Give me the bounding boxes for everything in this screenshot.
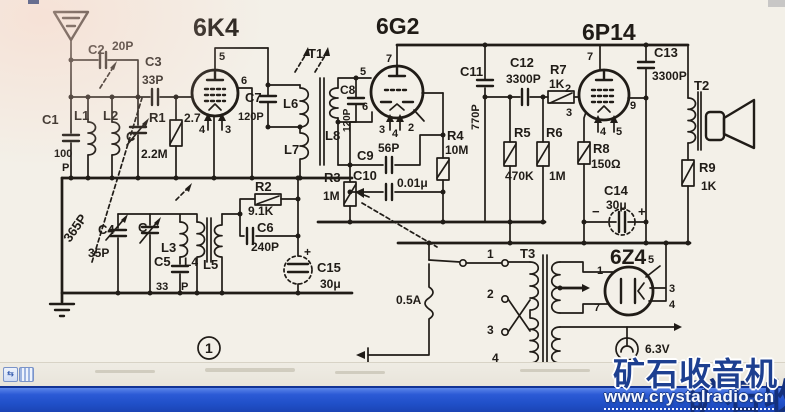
label-r5: R5 [514,125,531,140]
label-c7-val: 120P [238,111,264,123]
label-t3: T3 [520,246,535,261]
label-l2: L2 [103,108,118,123]
label-c1: C1 [42,112,59,127]
coupling-network [397,45,688,222]
label-c7: C7 [245,90,262,105]
label-c15-plus: + [304,245,311,259]
label-c5: C5 [154,254,171,269]
label-c9-val: 56P [378,141,399,155]
mixer-network [240,178,312,293]
label-pin-6g2-5: 5 [360,66,366,78]
label-title-6k4: 6K4 [193,14,239,42]
label-r7-val: 1K [549,77,565,91]
scan-artifact [28,0,39,4]
label-l7: L7 [284,142,299,157]
label-l6: L6 [283,96,298,111]
label-r7: R7 [550,62,567,77]
label-pin-6z4-7: 7 [594,302,600,314]
label-l1: L1 [74,108,89,123]
label-l5: L5 [203,257,218,272]
antenna-symbol [54,12,88,97]
label-c12-val: 3300P [506,72,541,86]
label-r1-aux: 2.7 [184,111,201,125]
tube-6g2 [371,45,443,130]
label-c3: C3 [145,54,162,69]
label-pin-6z4-5: 5 [648,254,654,266]
speaker-icon [706,100,754,148]
label-c6-val: 240P [251,240,279,254]
label-r4-val: 10M [445,143,468,157]
label-c14-val: 30μ [606,198,627,212]
label-tap-3: 3 [487,323,494,337]
label-pin-6z4-3: 3 [669,283,675,295]
label-r1-val: 2.2M [141,147,168,161]
label-pin-6z4-4: 4 [669,299,676,311]
label-c8-val: 120P [342,108,353,132]
label-section-1: 1 [205,340,213,356]
label-pin-6p14-5: 5 [616,126,622,138]
if-transformer-t1 [260,47,371,178]
label-r9: R9 [699,160,716,175]
label-pin-6p14-4: 4 [600,126,607,138]
ground-rails [50,178,690,316]
label-c8: C8 [340,83,356,97]
label-r1: R1 [149,110,166,125]
label-c13: C13 [654,45,678,60]
label-c1-unit: P [62,162,69,174]
scan-smudge [520,369,590,372]
watermark-site-url: www.crystalradio.cn [604,387,774,410]
label-r6: R6 [546,125,563,140]
label-c6: C6 [257,220,274,235]
label-c9: C9 [357,148,374,163]
label-t1: T1 [308,46,323,61]
scan-smudge [205,368,295,372]
label-c12: C12 [510,55,534,70]
label-c14-minus: − [592,204,600,219]
label-pin-6g2-6: 6 [362,101,368,113]
label-r2: R2 [255,179,272,194]
label-c1-val: 100 [54,148,72,160]
label-title-6z4: 6Z4 [610,246,647,269]
label-r5-val: 470K [505,169,534,183]
label-pin-6g2-3: 3 [379,124,385,136]
label-c2: C2 [88,42,105,57]
label-r3: R3 [324,170,341,185]
label-c10-val: 0.01μ [397,176,428,190]
label-c15-val: 30μ [320,277,341,291]
stripe-icon[interactable] [19,367,34,382]
label-l3: L3 [161,240,176,255]
label-c4: C4 [98,222,115,237]
label-t2: T2 [694,78,709,93]
label-pin-6z4-1: 1 [597,265,603,277]
screenshot-root: 6K46G26P146Z4C1100PC220PC333PC435PCC365P… [0,0,785,412]
label-c11-val: 770P [470,104,482,130]
label-pin-6g2-2: 2 [408,122,414,134]
label-r6-val: 1M [549,169,566,183]
label-c11: C11 [460,64,483,79]
label-gang-val: 365P [60,211,90,245]
label-c4-val: 35P [88,246,109,260]
label-fuse-val: 0.5A [396,293,422,307]
label-pin-6k4-6: 6 [241,75,247,87]
label-c2-val: 20P [112,39,133,53]
label-pin-6g2-4: 4 [392,128,399,140]
schematic-canvas: 6K46G26P146Z4C1100PC220PC333PC435PCC365P… [0,0,785,385]
label-c15: C15 [317,260,341,275]
label-c-gang2: C [138,220,148,235]
label-pin-6k4-5: 5 [219,51,225,63]
label-r2-val: 9.1K [248,204,274,218]
label-r3-val: 1M [323,189,340,203]
label-r8-val: 150Ω [591,157,621,171]
label-c5-val: 33 [156,281,168,293]
label-pin-6k4-3: 3 [225,124,231,136]
label-c10: C10 [353,168,377,183]
label-c3-val: 33P [142,73,163,87]
label-pin-6p14-9: 9 [630,100,636,112]
label-tap-1: 1 [487,247,494,261]
label-tap-2: 2 [487,287,494,301]
label-c14: C14 [604,183,629,198]
label-l4: L4 [184,255,198,269]
label-pin-6p14-7: 7 [587,51,593,63]
label-title-6g2: 6G2 [376,13,419,39]
label-r4: R4 [447,128,464,143]
nav-arrows-icon[interactable]: ⇆ [3,367,18,382]
scan-smudge [335,371,385,374]
label-l8: L8 [325,128,340,143]
label-c5-unit: P [181,281,188,293]
label-pin-6p14-3: 3 [566,107,572,119]
label-pin-6g2-7: 7 [386,53,392,65]
label-r8: R8 [593,141,610,156]
scan-smudge [95,370,155,373]
label-pin-6k4-4: 4 [199,124,206,136]
label-c14-plus: + [638,204,646,219]
label-c13-val: 3300P [652,69,687,83]
label-title-6p14: 6P14 [582,19,636,45]
label-c-gang1: C [126,129,136,144]
scan-artifact [768,0,785,7]
label-pin-6p14-2: 2 [565,83,571,95]
label-r9-val: 1K [701,179,717,193]
